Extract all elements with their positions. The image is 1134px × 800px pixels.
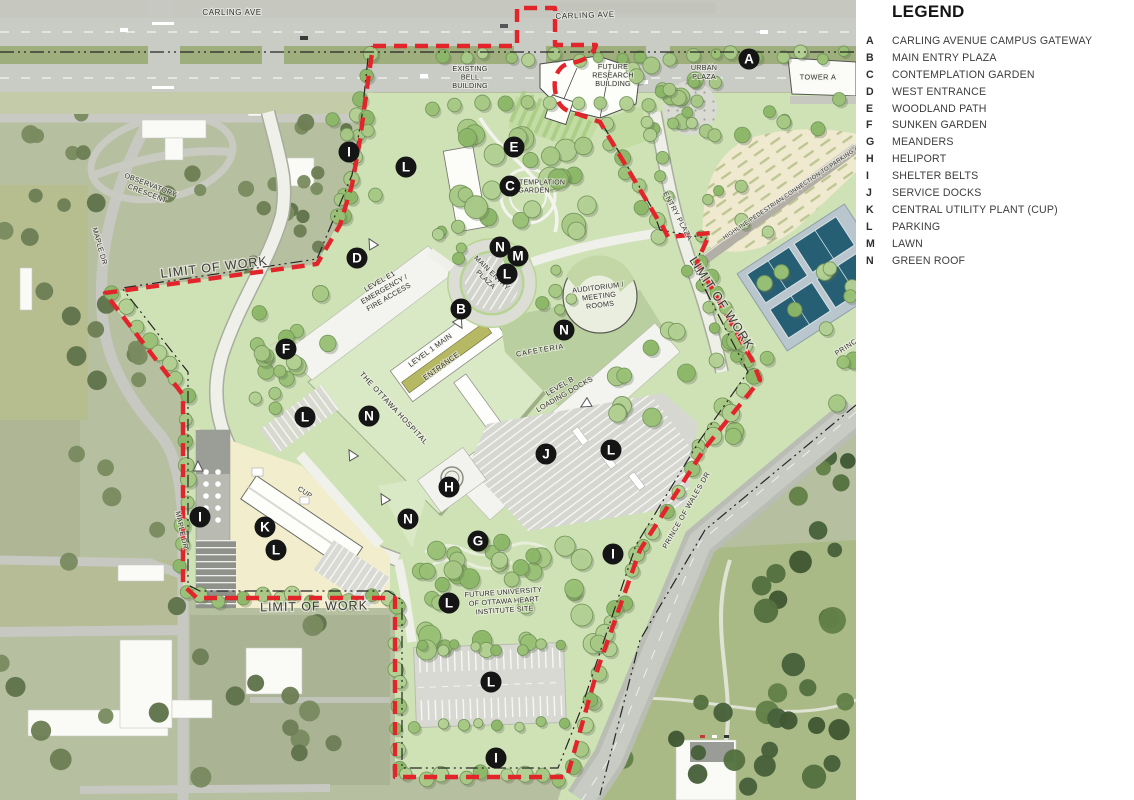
- svg-text:I: I: [198, 510, 202, 525]
- legend-item-J: JSERVICE DOCKS: [858, 187, 1134, 204]
- map-marker-L: L: [439, 593, 460, 614]
- map-marker-L: L: [396, 157, 417, 178]
- legend-item-key: J: [858, 187, 892, 199]
- map-marker-J: J: [536, 444, 557, 465]
- legend-item-label: MAIN ENTRY PLAZA: [892, 52, 997, 64]
- legend-item-I: ISHELTER BELTS: [858, 170, 1134, 187]
- legend-item-key: A: [858, 35, 892, 47]
- legend-item-key: I: [858, 170, 892, 182]
- svg-text:N: N: [495, 240, 505, 255]
- legend-item-B: BMAIN ENTRY PLAZA: [858, 52, 1134, 69]
- legend-item-A: ACARLING AVENUE CAMPUS GATEWAY: [858, 35, 1134, 52]
- svg-text:J: J: [542, 447, 550, 462]
- map-marker-I: I: [190, 507, 211, 528]
- map-marker-N: N: [398, 509, 419, 530]
- legend-item-M: MLAWN: [858, 238, 1134, 255]
- legend-item-label: GREEN ROOF: [892, 255, 965, 267]
- map-marker-E: E: [504, 137, 525, 158]
- map-marker-N: N: [359, 406, 380, 427]
- legend-item-label: CONTEMPLATION GARDEN: [892, 69, 1035, 81]
- map-marker-I: I: [486, 748, 507, 769]
- legend-item-key: E: [858, 103, 892, 115]
- svg-text:L: L: [272, 543, 280, 558]
- svg-text:G: G: [473, 534, 484, 549]
- legend-item-G: GMEANDERS: [858, 136, 1134, 153]
- map-marker-N: N: [554, 320, 575, 341]
- map-marker-F: F: [276, 339, 297, 360]
- svg-text:B: B: [456, 302, 466, 317]
- svg-text:A: A: [744, 52, 754, 67]
- map-marker-L: L: [601, 440, 622, 461]
- svg-text:N: N: [364, 409, 374, 424]
- map-marker-I: I: [603, 544, 624, 565]
- svg-text:N: N: [559, 323, 569, 338]
- svg-text:L: L: [503, 267, 511, 282]
- map-marker-M: M: [508, 246, 529, 267]
- site-plan-map: CARLING AVECARLING AVEEXISTINGBELLBUILDI…: [0, 0, 856, 800]
- map-marker-A: A: [739, 49, 760, 70]
- legend-item-label: LAWN: [892, 238, 923, 250]
- legend-item-key: B: [858, 52, 892, 64]
- map-marker-L: L: [481, 672, 502, 693]
- svg-text:D: D: [352, 251, 362, 266]
- svg-text:L: L: [402, 160, 410, 175]
- legend-item-key: H: [858, 153, 892, 165]
- svg-text:C: C: [505, 179, 515, 194]
- legend-item-key: M: [858, 238, 892, 250]
- svg-text:E: E: [509, 140, 518, 155]
- legend-item-label: PARKING: [892, 221, 940, 233]
- legend-item-L: LPARKING: [858, 221, 1134, 238]
- legend-item-label: CARLING AVENUE CAMPUS GATEWAY: [892, 35, 1092, 47]
- map-label: LIMIT OF WORK: [260, 598, 368, 614]
- map-label: CARLING AVE: [202, 8, 261, 17]
- legend-list: ACARLING AVENUE CAMPUS GATEWAYBMAIN ENTR…: [858, 35, 1134, 271]
- map-marker-B: B: [451, 299, 472, 320]
- map-marker-L: L: [295, 407, 316, 428]
- svg-text:I: I: [347, 145, 351, 160]
- legend-item-key: K: [858, 204, 892, 216]
- svg-text:H: H: [444, 480, 454, 495]
- legend-item-key: D: [858, 86, 892, 98]
- site-plan-drawing: CARLING AVECARLING AVEEXISTINGBELLBUILDI…: [0, 0, 856, 800]
- legend-item-N: NGREEN ROOF: [858, 255, 1134, 272]
- legend-item-H: HHELIPORT: [858, 153, 1134, 170]
- legend-item-E: EWOODLAND PATH: [858, 103, 1134, 120]
- legend-item-K: KCENTRAL UTILITY PLANT (CUP): [858, 204, 1134, 221]
- legend-title: LEGEND: [892, 2, 1134, 22]
- svg-text:L: L: [301, 410, 309, 425]
- svg-text:I: I: [494, 751, 498, 766]
- legend-item-label: SUNKEN GARDEN: [892, 119, 987, 131]
- legend-panel: LEGEND ACARLING AVENUE CAMPUS GATEWAYBMA…: [858, 0, 1134, 800]
- legend-item-key: N: [858, 255, 892, 267]
- svg-text:I: I: [611, 547, 615, 562]
- map-marker-D: D: [347, 248, 368, 269]
- svg-text:L: L: [445, 596, 453, 611]
- legend-item-C: CCONTEMPLATION GARDEN: [858, 69, 1134, 86]
- map-marker-L: L: [266, 540, 287, 561]
- map-marker-L: L: [497, 264, 518, 285]
- map-label: TOWER A: [800, 73, 837, 82]
- site-plan-page: CARLING AVECARLING AVEEXISTINGBELLBUILDI…: [0, 0, 1134, 800]
- map-label: URBANPLAZA: [691, 63, 717, 81]
- map-marker-H: H: [439, 477, 460, 498]
- svg-text:K: K: [260, 520, 270, 535]
- map-marker-I: I: [339, 142, 360, 163]
- legend-item-F: FSUNKEN GARDEN: [858, 119, 1134, 136]
- legend-item-label: WOODLAND PATH: [892, 103, 987, 115]
- svg-text:N: N: [403, 512, 413, 527]
- map-label: FUTURE UNIVERSITYOF OTTAWA HEARTINSTITUT…: [464, 585, 543, 617]
- legend-item-key: C: [858, 69, 892, 81]
- legend-item-label: WEST ENTRANCE: [892, 86, 986, 98]
- legend-item-label: HELIPORT: [892, 153, 946, 165]
- legend-item-key: L: [858, 221, 892, 233]
- legend-item-D: DWEST ENTRANCE: [858, 86, 1134, 103]
- map-label: FUTURERESEARCHBUILDING: [592, 62, 634, 88]
- map-marker-G: G: [468, 531, 489, 552]
- legend-item-key: G: [858, 136, 892, 148]
- svg-text:M: M: [512, 249, 523, 264]
- map-marker-K: K: [255, 517, 276, 538]
- map-marker-N: N: [490, 237, 511, 258]
- legend-item-label: MEANDERS: [892, 136, 954, 148]
- legend-item-label: SERVICE DOCKS: [892, 187, 982, 199]
- map-marker-C: C: [500, 176, 521, 197]
- svg-text:F: F: [282, 342, 290, 357]
- svg-text:L: L: [607, 443, 615, 458]
- svg-text:L: L: [487, 675, 495, 690]
- legend-item-key: F: [858, 119, 892, 131]
- legend-item-label: CENTRAL UTILITY PLANT (CUP): [892, 204, 1058, 216]
- legend-item-label: SHELTER BELTS: [892, 170, 978, 182]
